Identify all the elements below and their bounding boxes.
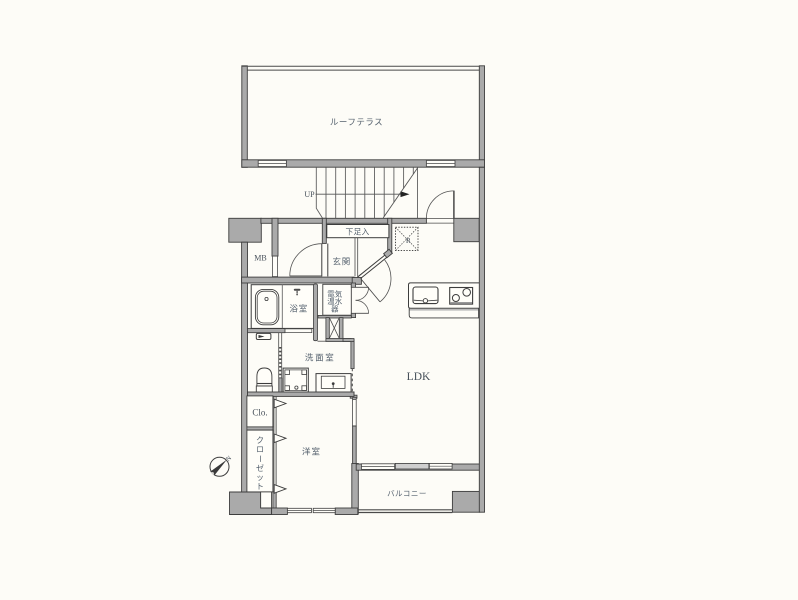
svg-text:R: R (406, 236, 411, 245)
svg-text:ク: ク (256, 436, 264, 445)
svg-text:ロ: ロ (256, 445, 264, 454)
svg-text:バルコニー: バルコニー (387, 489, 427, 498)
svg-text:玄関: 玄関 (332, 256, 351, 266)
svg-text:浴室: 浴室 (289, 303, 308, 313)
svg-text:UP: UP (304, 190, 315, 199)
svg-text:洗面室: 洗面室 (305, 353, 336, 363)
svg-text:ルーフテラス: ルーフテラス (330, 117, 383, 127)
svg-text:Clo.: Clo. (252, 408, 267, 418)
svg-text:ッ: ッ (256, 473, 264, 482)
svg-text:ト: ト (256, 482, 264, 491)
svg-text:器: 器 (331, 304, 339, 313)
svg-text:ー: ー (255, 455, 264, 463)
svg-text:LDK: LDK (407, 371, 431, 383)
svg-text:洋室: 洋室 (302, 447, 321, 457)
svg-text:下足入: 下足入 (346, 228, 370, 237)
svg-text:ゼ: ゼ (256, 463, 264, 473)
svg-text:MB: MB (254, 254, 266, 263)
